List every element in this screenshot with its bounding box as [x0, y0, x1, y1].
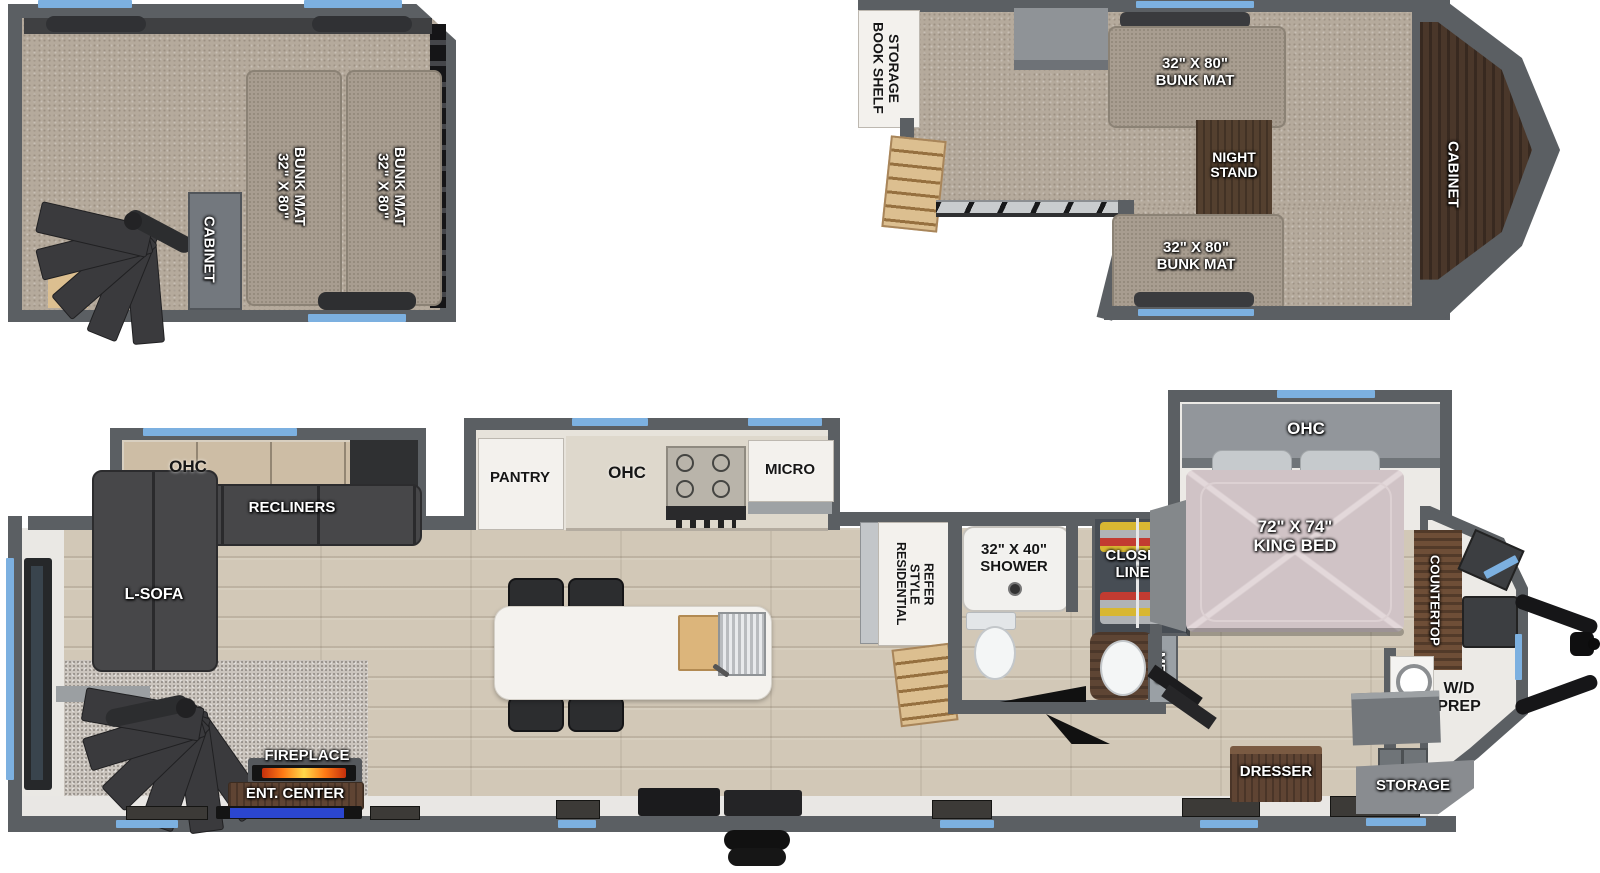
ent-center-label: ENT. CENTER — [232, 786, 358, 803]
shower-drain — [1008, 582, 1022, 596]
night-stand-label: NIGHT STAND — [1196, 150, 1272, 181]
window — [143, 428, 297, 436]
spiral-stair-pole — [124, 212, 142, 230]
window — [1515, 634, 1522, 680]
window — [1277, 390, 1375, 398]
night-stand-line: STAND — [1196, 165, 1272, 180]
island-chair — [508, 696, 564, 732]
entry-steps — [728, 848, 786, 866]
kitchen-ohc-label: OHC — [600, 464, 654, 483]
entry-steps — [724, 830, 790, 850]
bolster — [318, 292, 416, 310]
bolster — [1134, 292, 1254, 307]
bunk-mat-text: BUNK MAT — [1112, 257, 1280, 274]
window — [940, 820, 994, 828]
burner — [712, 454, 730, 472]
floor-mat — [370, 806, 420, 820]
vanity-sink — [1100, 640, 1146, 696]
loft-overhang-edge — [1014, 60, 1108, 70]
ent-center-blue-strip — [230, 808, 344, 818]
top-wall-b — [420, 516, 468, 530]
bolster — [46, 16, 146, 32]
bunk-mat-text: BUNK MAT — [391, 80, 408, 292]
entry-door — [638, 788, 720, 816]
bunk-mat-label: 32" X 80" BUNK MAT — [1112, 240, 1280, 273]
shower-size: 32" X 40" — [966, 542, 1062, 559]
loft-overhang-box — [1014, 8, 1108, 66]
bunk-mat-text: BUNK MAT — [291, 80, 308, 292]
island-sink — [718, 612, 766, 676]
window — [558, 820, 596, 828]
burner — [676, 454, 694, 472]
window — [1200, 820, 1258, 828]
window — [572, 418, 648, 426]
micro-shelf — [748, 502, 832, 514]
living-ohc-label: OHC — [160, 458, 216, 477]
pantry-label: PANTRY — [484, 470, 556, 487]
window — [38, 0, 132, 8]
king-bed-size: 72" X 74" — [1230, 518, 1360, 537]
loft-stairs — [881, 135, 946, 232]
king-bed-label: 72" X 74" KING BED — [1230, 518, 1360, 555]
king-bed-text: KING BED — [1230, 537, 1360, 556]
fireplace-label: FIREPLACE — [252, 748, 362, 765]
burner — [712, 480, 730, 498]
oven-front — [666, 506, 746, 520]
refer-side — [860, 522, 880, 644]
bath-wall-left — [948, 516, 962, 714]
oven-knobs — [676, 520, 736, 528]
window — [6, 558, 14, 780]
l-sofa-label: L-SOFA — [114, 586, 194, 604]
recliners-label: RECLINERS — [232, 500, 352, 517]
platform-steps — [1150, 500, 1186, 632]
floor-mat — [556, 800, 600, 819]
desk — [1351, 690, 1441, 745]
bookshelf-line: STORAGE — [885, 14, 900, 122]
storage-label: STORAGE — [1366, 778, 1460, 795]
bedroom-ohc-label: OHC — [1280, 420, 1332, 439]
tv-screen — [31, 566, 43, 780]
rear-loft-cabinet-label: CABINET — [200, 198, 217, 300]
countertop-label: COUNTERTOP — [1427, 538, 1441, 662]
bookshelf-storage-label: BOOK SHELF STORAGE — [870, 14, 901, 122]
refer-line: STYLE — [907, 528, 921, 640]
toilet-bowl — [974, 626, 1016, 680]
window-seat-cushion — [1462, 596, 1518, 648]
bunk-mat-label: 32" X 80" BUNK MAT — [1108, 56, 1282, 89]
window — [116, 820, 178, 828]
window — [308, 314, 406, 322]
bookshelf-line: BOOK SHELF — [870, 14, 885, 122]
window — [748, 418, 822, 426]
micro-label: MICRO — [752, 462, 828, 479]
cutting-board — [678, 615, 720, 671]
burner — [676, 480, 694, 498]
fireplace-flame — [262, 768, 346, 778]
refer-line: RESIDENTIAL — [893, 528, 907, 640]
window — [1136, 1, 1254, 8]
bunk-mat-label: 32" X 80" BUNK MAT — [274, 80, 307, 292]
hitch-ball — [1588, 638, 1600, 650]
bunk-mat-text: BUNK MAT — [1108, 73, 1282, 90]
bath-bottom-wall — [948, 700, 1166, 714]
island-chair — [568, 696, 624, 732]
window — [1138, 309, 1254, 316]
refer-line: REFER — [921, 528, 935, 640]
bed-foot-shadow — [1186, 628, 1404, 636]
chaise-sofa — [92, 470, 218, 672]
shower-text: SHOWER — [966, 559, 1062, 576]
bunk-mat-size: 32" X 80" — [374, 80, 391, 292]
loft-railing-shadow — [936, 213, 1122, 217]
front-loft-cabinet-label: CABINET — [1444, 118, 1461, 230]
bath-wall-right — [1066, 516, 1078, 612]
floor-mat — [932, 800, 992, 819]
floor-mat — [126, 806, 208, 820]
bunk-mat-size: 32" X 80" — [1112, 240, 1280, 257]
bunk-mat-size: 32" X 80" — [1108, 56, 1282, 73]
bunk-mat-label: 32" X 80" BUNK MAT — [374, 80, 407, 292]
window — [304, 0, 402, 8]
bolster — [312, 16, 412, 32]
rv-floorplan: CABINET 32" X 80" BUNK MAT 32" X 80" BUN… — [0, 0, 1600, 873]
dresser-label: DRESSER — [1234, 764, 1318, 781]
shower-label: 32" X 40" SHOWER — [966, 542, 1062, 575]
entry-door — [724, 790, 802, 816]
spiral-stair-pole — [176, 698, 196, 718]
refer-label: RESIDENTIAL STYLE REFER — [893, 528, 934, 640]
bunk-mat-size: 32" X 80" — [274, 80, 291, 292]
window — [1366, 818, 1426, 826]
